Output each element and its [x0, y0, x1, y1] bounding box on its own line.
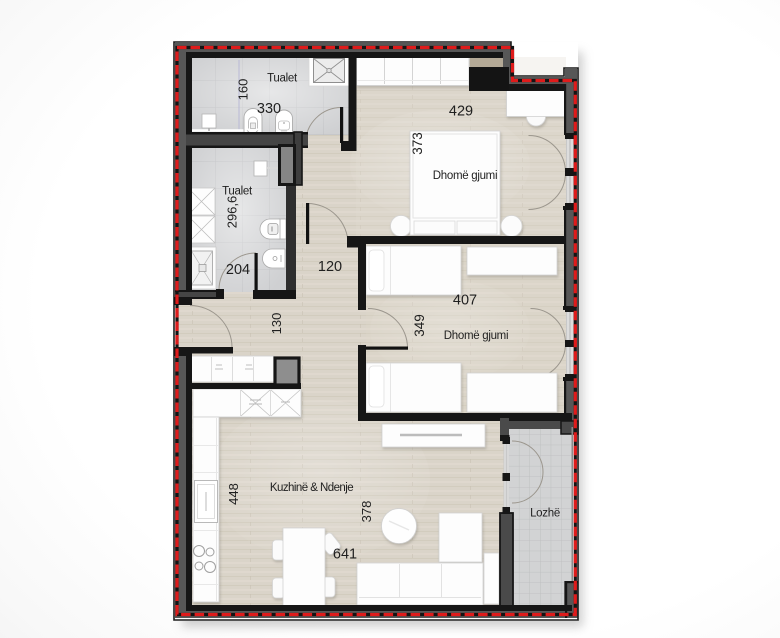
- svg-text:429: 429: [449, 104, 473, 120]
- svg-text:160: 160: [236, 79, 251, 101]
- svg-text:Kuzhinë & Ndenje: Kuzhinë & Ndenje: [270, 482, 353, 494]
- svg-text:349: 349: [412, 314, 427, 337]
- svg-text:296,6: 296,6: [225, 196, 240, 229]
- svg-text:Tualet: Tualet: [222, 186, 253, 198]
- svg-text:407: 407: [453, 293, 477, 309]
- svg-text:641: 641: [333, 547, 357, 563]
- svg-text:448: 448: [226, 483, 241, 505]
- svg-text:Tualet: Tualet: [267, 73, 298, 85]
- svg-text:Dhomë gjumi: Dhomë gjumi: [444, 330, 508, 342]
- svg-text:120: 120: [318, 259, 342, 275]
- svg-text:330: 330: [257, 101, 281, 117]
- svg-text:Lozhë: Lozhë: [530, 508, 560, 520]
- svg-text:373: 373: [410, 132, 425, 155]
- svg-text:378: 378: [359, 501, 374, 523]
- svg-text:130: 130: [269, 313, 284, 335]
- svg-text:204: 204: [226, 262, 250, 278]
- svg-text:Dhomë gjumi: Dhomë gjumi: [433, 170, 497, 182]
